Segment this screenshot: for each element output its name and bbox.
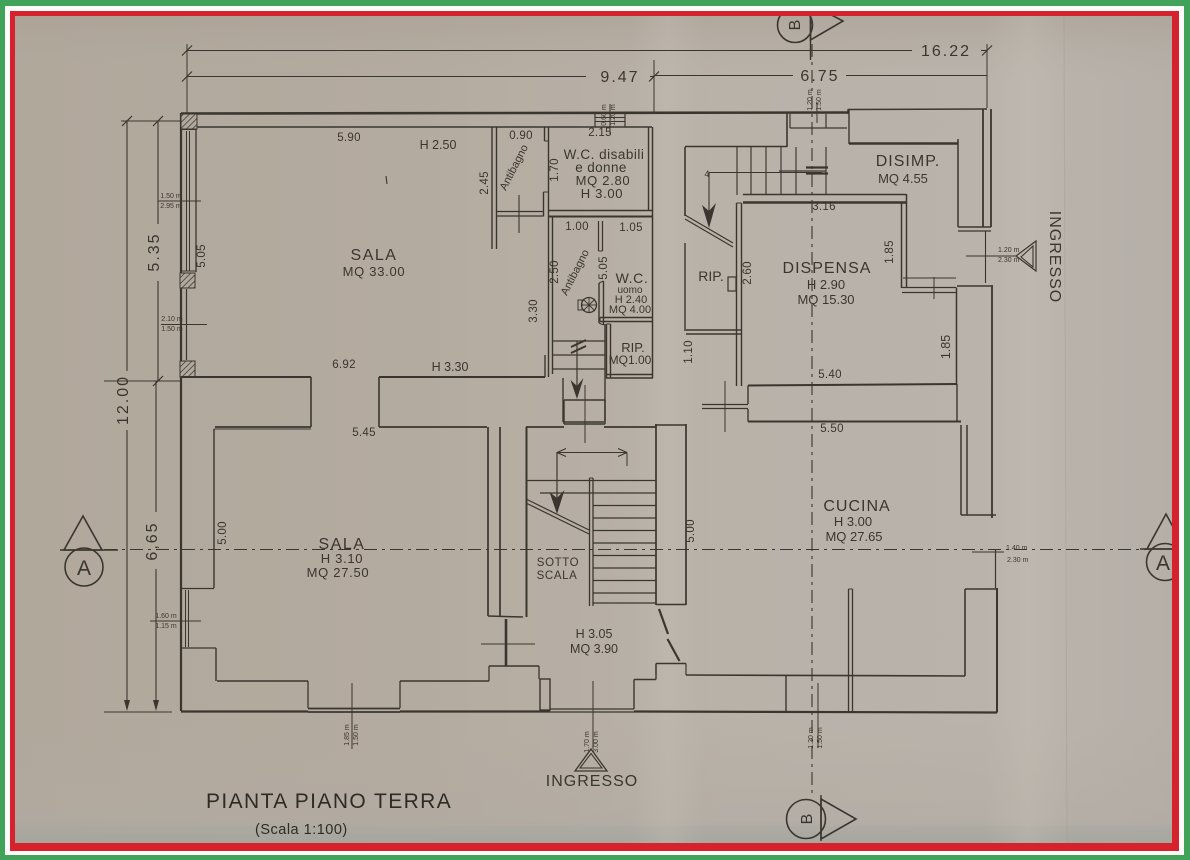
svg-text:16.22: 16.22	[921, 43, 971, 60]
svg-text:MQ 33.00: MQ 33.00	[343, 264, 406, 279]
svg-text:INGRESSO: INGRESSO	[546, 773, 638, 790]
svg-text:2.50: 2.50	[549, 260, 561, 284]
svg-text:5.35: 5.35	[146, 232, 163, 271]
svg-text:9.47: 9.47	[600, 69, 639, 86]
svg-text:B: B	[799, 814, 816, 825]
svg-text:1.50 m: 1.50 m	[160, 193, 182, 200]
svg-text:H 3.00: H 3.00	[581, 186, 624, 201]
svg-text:PIANTA PIANO TERRA: PIANTA PIANO TERRA	[206, 790, 452, 813]
svg-text:H 3.30: H 3.30	[432, 360, 469, 374]
svg-text:2.30 m: 2.30 m	[1007, 557, 1029, 564]
svg-text:(Scala 1:100): (Scala 1:100)	[255, 822, 348, 838]
svg-text:MQ1.00: MQ1.00	[609, 353, 652, 367]
svg-text:INGRESSO: INGRESSO	[1046, 211, 1063, 303]
svg-text:5.00: 5.00	[685, 519, 697, 543]
svg-text:6.75: 6.75	[800, 68, 839, 85]
svg-text:SCALA: SCALA	[537, 570, 578, 582]
svg-text:H 3.05: H 3.05	[576, 627, 613, 641]
svg-text:3.16: 3.16	[812, 201, 836, 213]
svg-text:H 3.00: H 3.00	[834, 514, 872, 529]
svg-text:RIP.: RIP.	[698, 268, 723, 284]
svg-text:2.30 m: 2.30 m	[998, 257, 1020, 264]
svg-text:0.60 m: 0.60 m	[601, 104, 608, 126]
svg-text:5.40: 5.40	[818, 369, 842, 381]
svg-text:1.40 m: 1.40 m	[1006, 545, 1028, 552]
svg-text:B: B	[787, 20, 804, 31]
svg-text:1.85 m: 1.85 m	[344, 724, 351, 746]
svg-text:DISPENSA: DISPENSA	[783, 260, 872, 277]
svg-text:SOTTO: SOTTO	[537, 557, 579, 569]
svg-text:H 2.90: H 2.90	[807, 277, 845, 292]
svg-text:1.85: 1.85	[939, 335, 953, 359]
svg-text:1.50 m: 1.50 m	[353, 724, 360, 746]
svg-text:1.50 m: 1.50 m	[816, 89, 823, 111]
svg-text:1.85: 1.85	[884, 240, 896, 264]
svg-text:1.15 m: 1.15 m	[155, 623, 177, 630]
svg-text:1.05: 1.05	[619, 222, 643, 234]
svg-text:1.00: 1.00	[565, 221, 589, 233]
svg-text:MQ 15.30: MQ 15.30	[797, 292, 854, 307]
svg-text:MQ 4.00: MQ 4.00	[609, 304, 651, 316]
svg-text:A: A	[1156, 552, 1170, 575]
svg-text:MQ 3.90: MQ 3.90	[570, 642, 618, 656]
svg-text:12.00: 12.00	[115, 375, 132, 425]
svg-text:1.20 m: 1.20 m	[807, 89, 814, 111]
svg-text:5.90: 5.90	[337, 132, 361, 144]
svg-text:DISIMP.: DISIMP.	[876, 153, 941, 170]
svg-text:2.15: 2.15	[588, 127, 612, 139]
svg-text:1.50 m: 1.50 m	[817, 727, 824, 749]
svg-text:1.20 m: 1.20 m	[808, 727, 815, 749]
svg-text:2.10 m: 2.10 m	[161, 316, 183, 323]
svg-text:W.C.: W.C.	[616, 270, 649, 286]
svg-text:1.50 m: 1.50 m	[161, 326, 183, 333]
svg-text:1.70: 1.70	[549, 158, 561, 182]
svg-text:5.00: 5.00	[217, 521, 229, 545]
svg-text:H 2.50: H 2.50	[420, 138, 457, 152]
svg-text:MQ 27.65: MQ 27.65	[825, 529, 882, 544]
svg-text:0.90: 0.90	[509, 130, 533, 142]
svg-text:6,65: 6,65	[144, 521, 161, 560]
svg-text:CUCINA: CUCINA	[823, 498, 890, 515]
svg-text:5.50: 5.50	[820, 423, 844, 435]
svg-text:3.00 m: 3.00 m	[593, 731, 600, 753]
svg-text:2.95 m: 2.95 m	[160, 203, 182, 210]
svg-text:3.30: 3.30	[528, 299, 540, 323]
svg-text:MQ 4.55: MQ 4.55	[878, 171, 928, 186]
svg-text:5.05: 5.05	[196, 244, 208, 268]
svg-text:2.45: 2.45	[479, 171, 491, 195]
svg-text:1.20 m: 1.20 m	[998, 247, 1020, 254]
svg-text:MQ 27.50: MQ 27.50	[307, 565, 370, 580]
svg-text:1.10: 1.10	[683, 340, 695, 364]
svg-text:5.05: 5.05	[598, 256, 610, 280]
svg-text:1.60 m: 1.60 m	[155, 613, 177, 620]
svg-text:1.20 m: 1.20 m	[610, 104, 617, 126]
svg-text:SALA: SALA	[351, 247, 398, 264]
svg-text:6.92: 6.92	[332, 359, 356, 371]
svg-text:H 3.10: H 3.10	[321, 551, 364, 566]
svg-text:5.45: 5.45	[352, 427, 376, 439]
svg-text:A: A	[77, 557, 91, 580]
svg-text:2.60: 2.60	[742, 261, 754, 285]
